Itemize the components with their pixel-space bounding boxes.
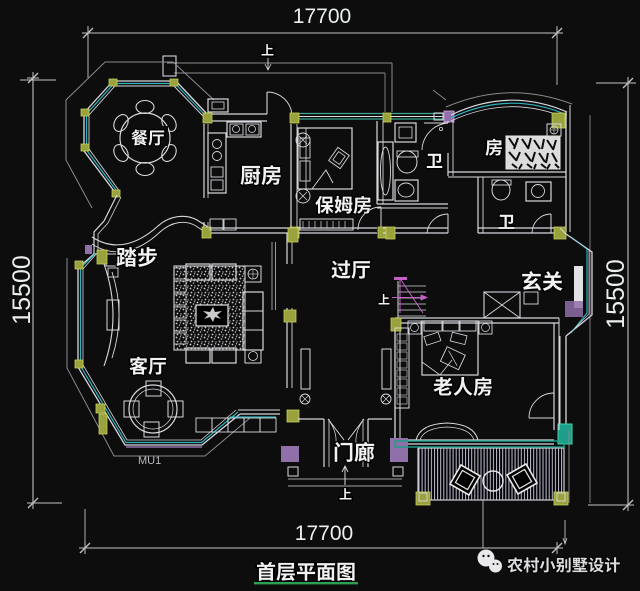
svg-text:15500: 15500	[602, 259, 630, 329]
svg-text:15500: 15500	[8, 255, 36, 325]
svg-text:MU1: MU1	[138, 455, 161, 467]
svg-text:17700: 17700	[293, 5, 351, 28]
svg-text:17700: 17700	[295, 522, 353, 545]
